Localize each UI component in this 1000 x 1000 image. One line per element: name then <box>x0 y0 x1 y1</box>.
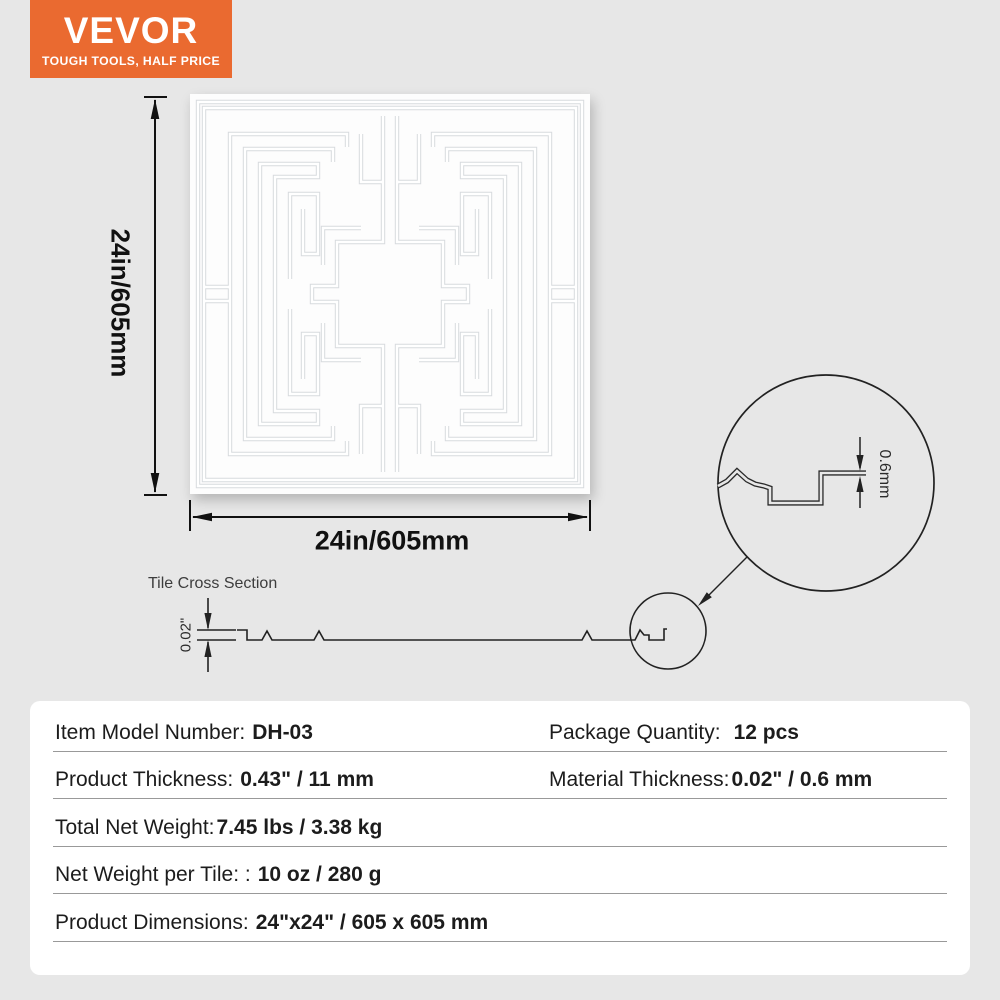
tile-groove-outer <box>198 102 582 486</box>
spec-value: DH-03 <box>252 721 313 745</box>
magnifier-circle <box>718 375 934 591</box>
thickness-label: 0.02" <box>178 618 195 653</box>
tile-pattern-svg <box>190 94 590 494</box>
spec-value: 0.02" / 0.6 mm <box>732 768 873 792</box>
spec-card: Item Model Number: DH-03 Package Quantit… <box>30 701 970 975</box>
width-dimension-label: 24in/605mm <box>315 526 470 557</box>
spec-label: Package Quantity: <box>549 721 721 745</box>
spec-row: Total Net Weight: 7.45 lbs / 3.38 kg <box>53 799 947 847</box>
spec-label: Material Thickness: <box>549 768 730 792</box>
leader-arrow <box>698 557 747 606</box>
ceiling-tile-drawing <box>190 94 590 494</box>
spec-row: Product Dimensions: 24"x24" / 605 x 605 … <box>53 894 947 942</box>
cross-section-profile <box>237 629 667 640</box>
magnified-profile <box>718 471 866 503</box>
vevor-logo: VEVOR TOUGH TOOLS, HALF PRICE <box>30 0 232 78</box>
spec-label: Product Dimensions: <box>55 911 249 935</box>
spec-value: 10 oz / 280 g <box>258 863 382 887</box>
cross-section-title: Tile Cross Section <box>148 575 277 593</box>
tile-groove-inner <box>198 102 582 486</box>
thickness-dimension <box>197 598 236 672</box>
height-dimension-label: 24in/605mm <box>105 229 136 378</box>
material-thickness-dimension <box>856 437 863 508</box>
spec-value: 12 pcs <box>734 721 799 745</box>
spec-row: Item Model Number: DH-03 Package Quantit… <box>53 704 947 752</box>
page-background: { "colors": { "accent_orange": "#ea6a30"… <box>0 0 1000 1000</box>
spec-value: 7.45 lbs / 3.38 kg <box>217 816 383 840</box>
detail-circle <box>630 593 706 669</box>
brand-tagline: TOUGH TOOLS, HALF PRICE <box>42 54 220 68</box>
spec-label: Net Weight per Tile: : <box>55 863 251 887</box>
spec-row: Product Thickness: 0.43" / 11 mm Materia… <box>53 752 947 800</box>
spec-value: 0.43" / 11 mm <box>240 768 374 792</box>
spec-value: 24"x24" / 605 x 605 mm <box>256 911 488 935</box>
spec-label: Product Thickness: <box>55 768 233 792</box>
height-dimension <box>144 97 167 495</box>
brand-name: VEVOR <box>64 12 199 49</box>
spec-label: Total Net Weight: <box>55 816 215 840</box>
magnified-thickness-label: 0.6mm <box>875 450 893 499</box>
spec-row: Net Weight per Tile: : 10 oz / 280 g <box>53 847 947 895</box>
spec-label: Item Model Number: <box>55 721 245 745</box>
